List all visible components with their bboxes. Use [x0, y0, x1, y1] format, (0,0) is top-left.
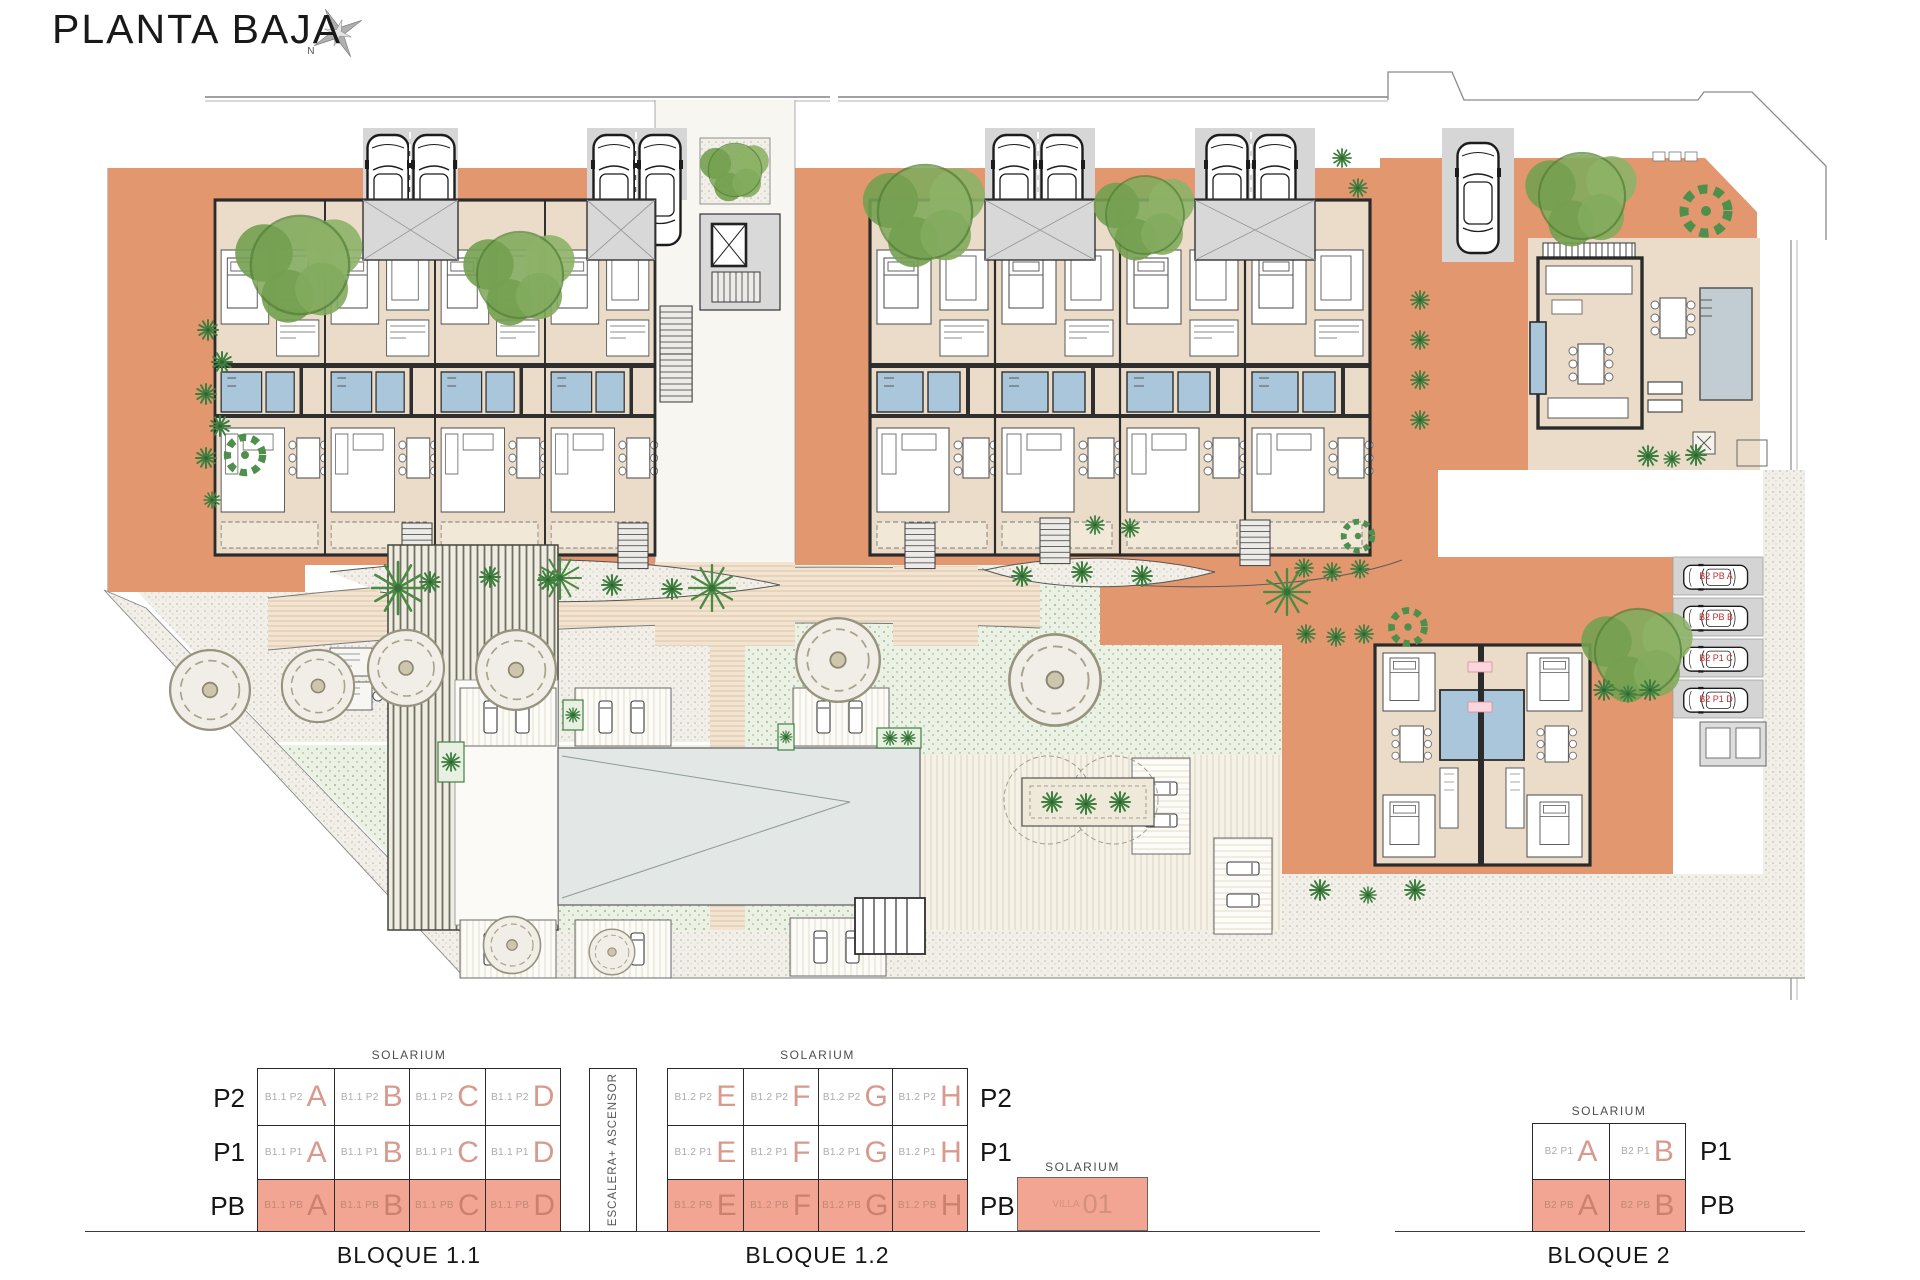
- unit-cell: B1.1 P1C: [409, 1125, 485, 1179]
- solarium-label-villa: SOLARIUM: [1017, 1160, 1148, 1174]
- unit-cell: B1.1 P2C: [409, 1069, 485, 1125]
- unit-cell: B1.1 P2B: [334, 1069, 410, 1125]
- page-title: PLANTA BAJA: [52, 6, 342, 53]
- stairs-icon: [660, 306, 692, 354]
- floor-label-b2-pb: PB: [1700, 1190, 1735, 1221]
- unit-tag: [1468, 662, 1492, 672]
- unit-cell: B2 PBA: [1533, 1179, 1609, 1231]
- escalera-ascensor-box: ESCALERA+ ASCENSOR: [589, 1068, 637, 1232]
- unit-cell: B2 P1A: [1533, 1124, 1609, 1179]
- parking-label: B2 PB B: [1699, 612, 1733, 622]
- unit-cell: B1.2 PBG: [818, 1179, 893, 1231]
- unit-cell: B1.2 P2E: [668, 1069, 743, 1125]
- villa-01-diagram: VILLA01: [1017, 1177, 1148, 1231]
- parking-label: B2 PB A: [1699, 571, 1733, 581]
- building-bloque-2: [1375, 645, 1590, 865]
- unit-cell: B1.1 PBA: [258, 1179, 334, 1231]
- floor-label-b12-p2: P2: [980, 1083, 1012, 1114]
- floor-label-b2-p1: P1: [1700, 1136, 1732, 1167]
- unit-cell: B1.2 P1H: [892, 1125, 967, 1179]
- pool-kiosk: [855, 898, 925, 954]
- unit-cell: B1.2 PBH: [892, 1179, 967, 1231]
- unit-cell: B1.1 P2D: [485, 1069, 561, 1125]
- unit-cell: B1.2 P1F: [743, 1125, 818, 1179]
- bloque-2-label: BLOQUE 2: [1532, 1242, 1686, 1269]
- unit-cell: B1.2 P2G: [818, 1069, 893, 1125]
- villa-pool: [1700, 288, 1752, 400]
- unit-cell: B2 PBB: [1609, 1179, 1685, 1231]
- solarium-label-b12: SOLARIUM: [667, 1048, 968, 1062]
- unit-cell: B1.2 P1G: [818, 1125, 893, 1179]
- bloque-1-2-diagram: B1.2 P2E B1.2 P2F B1.2 P2G B1.2 P2H B1.2…: [667, 1068, 968, 1232]
- unit-cell: B1.1 P1A: [258, 1125, 334, 1179]
- solarium-label-b11: SOLARIUM: [257, 1048, 561, 1062]
- floor-label-b12-p1: P1: [980, 1137, 1012, 1168]
- unit-cell: B1.1 PBB: [334, 1179, 410, 1231]
- parking-label: B2 P1 C: [1699, 653, 1733, 663]
- unit-tag: [1468, 702, 1492, 712]
- solarium-label-b2: SOLARIUM: [1532, 1104, 1686, 1118]
- utility-box: [1700, 722, 1766, 766]
- unit-cell: B1.2 P2H: [892, 1069, 967, 1125]
- bloque-1-1-label: BLOQUE 1.1: [257, 1242, 561, 1269]
- unit-cell: B1.1 PBD: [485, 1179, 561, 1231]
- planta-baja-sheet: B2 PB A B2 PB B B2 P1 C B2 P1 D: [0, 0, 1920, 1280]
- floor-label-b11-pb: PB: [165, 1191, 245, 1222]
- unit-cell: B1.1 P2A: [258, 1069, 334, 1125]
- bloque-1-1-diagram: B1.1 P2A B1.1 P2B B1.1 P2C B1.1 P2D B1.1…: [257, 1068, 561, 1232]
- parking-label: B2 P1 D: [1699, 694, 1733, 704]
- unit-cell: B1.2 PBE: [668, 1179, 743, 1231]
- unit-cell: B1.2 PBF: [743, 1179, 818, 1231]
- floor-label-b12-pb: PB: [980, 1191, 1015, 1222]
- unit-cell: B1.1 P1B: [334, 1125, 410, 1179]
- bloque-2-diagram: B2 P1A B2 P1B B2 PBA B2 PBB: [1532, 1123, 1686, 1232]
- floor-label-b11-p1: P1: [165, 1137, 245, 1168]
- parking-bloque2: B2 PB A B2 PB B B2 P1 C B2 P1 D: [1673, 557, 1766, 766]
- unit-cell: B1.1 P1D: [485, 1125, 561, 1179]
- bloque-1-2-label: BLOQUE 1.2: [667, 1242, 968, 1269]
- unit-cell: B1.2 P1E: [668, 1125, 743, 1179]
- unit-cell: B1.1 PBC: [409, 1179, 485, 1231]
- floor-label-b11-p2: P2: [165, 1083, 245, 1114]
- unit-cell: B1.2 P2F: [743, 1069, 818, 1125]
- unit-cell: B2 P1B: [1609, 1124, 1685, 1179]
